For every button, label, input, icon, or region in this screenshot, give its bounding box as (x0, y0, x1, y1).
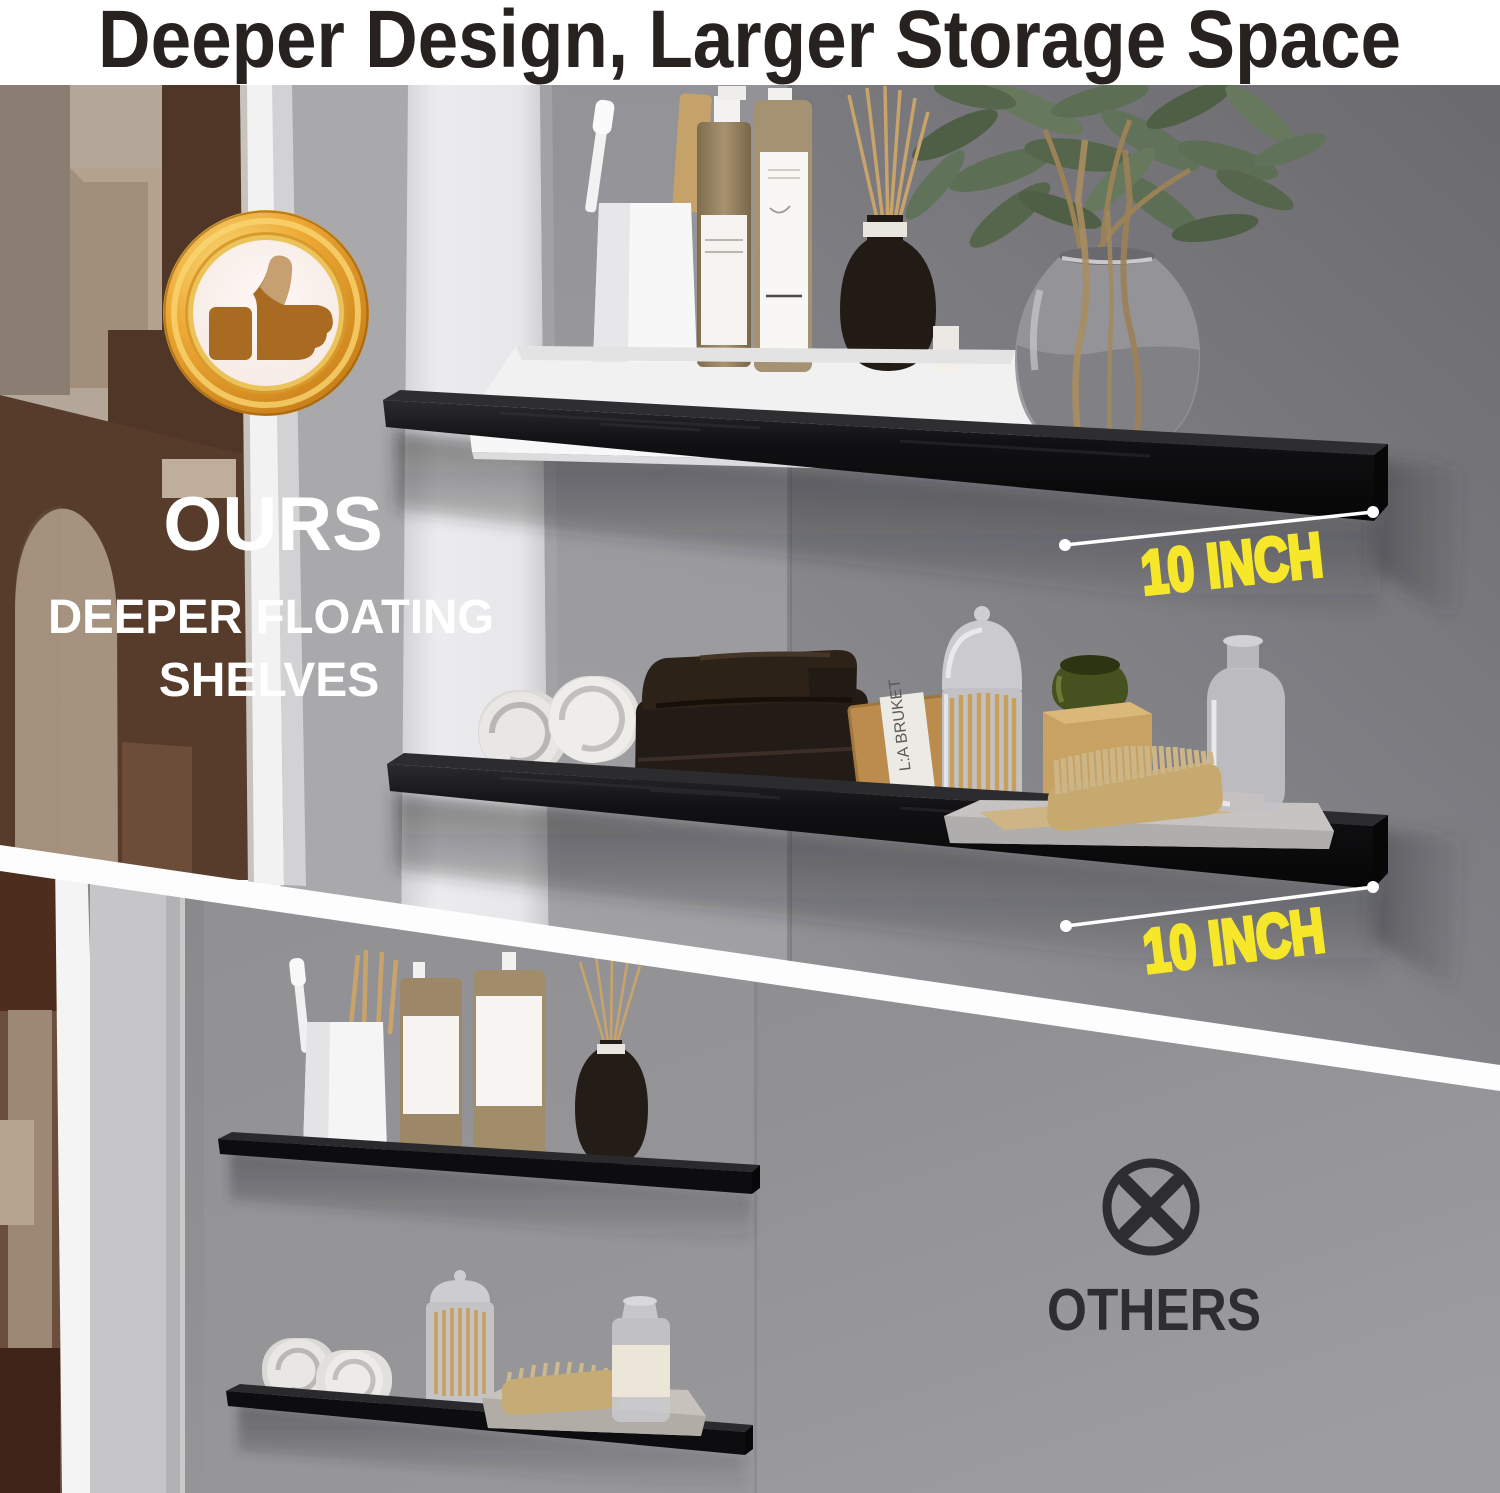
svg-text:Deeper Design, Larger Storage: Deeper Design, Larger Storage Space (98, 0, 1401, 85)
svg-text:SHELVES: SHELVES (159, 654, 380, 707)
svg-text:OURS: OURS (163, 482, 383, 567)
svg-text:DEEPER FLOATING: DEEPER FLOATING (48, 591, 494, 644)
svg-text:OTHERS: OTHERS (1047, 1277, 1261, 1343)
